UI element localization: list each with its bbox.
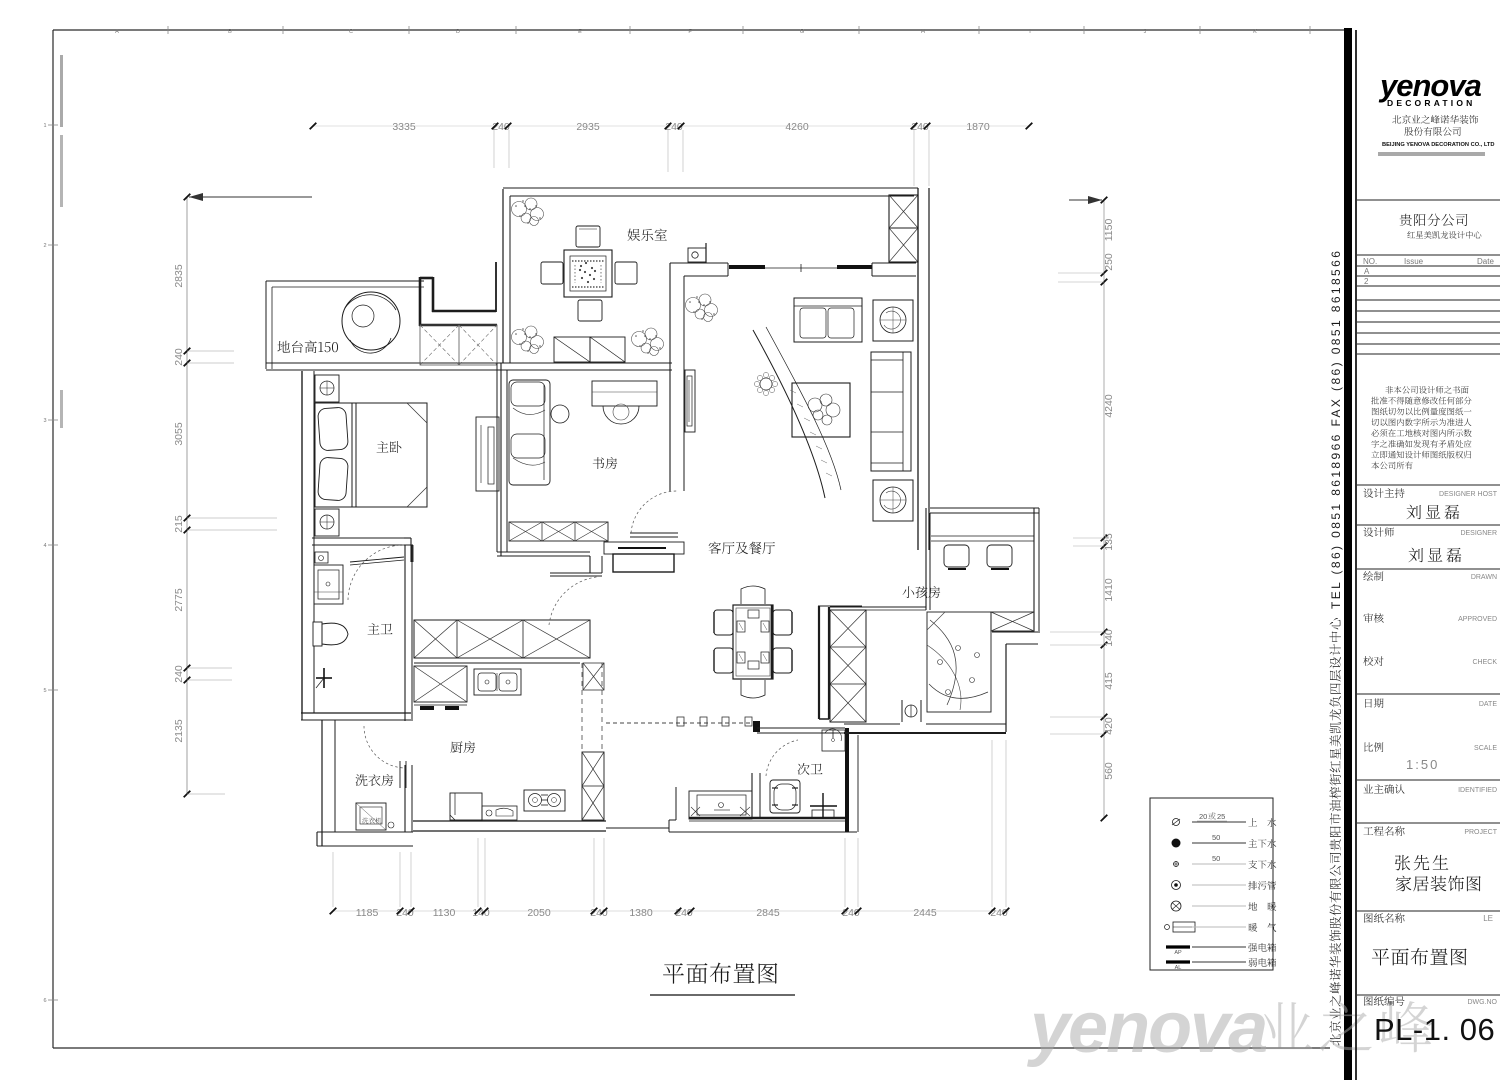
svg-text:420: 420 bbox=[1103, 717, 1115, 735]
svg-text:H: H bbox=[921, 29, 925, 35]
svg-text:2935: 2935 bbox=[576, 121, 600, 133]
svg-text:2845: 2845 bbox=[756, 907, 780, 919]
svg-text:NO.: NO. bbox=[1363, 257, 1377, 266]
svg-text:1870: 1870 bbox=[966, 121, 990, 133]
svg-text:C: C bbox=[349, 29, 353, 35]
svg-text:1130: 1130 bbox=[433, 907, 456, 919]
svg-text:3055: 3055 bbox=[173, 422, 185, 446]
svg-text:1150: 1150 bbox=[1103, 219, 1115, 242]
svg-text:3: 3 bbox=[43, 418, 46, 424]
svg-text:PL-1. 06: PL-1. 06 bbox=[1374, 1012, 1495, 1047]
svg-text:250: 250 bbox=[1103, 253, 1115, 271]
svg-text:yenova: yenova bbox=[1027, 988, 1266, 1068]
svg-text:240: 240 bbox=[173, 348, 185, 366]
svg-text:DRAWN: DRAWN bbox=[1471, 574, 1497, 581]
svg-text:2: 2 bbox=[1364, 277, 1369, 286]
svg-text:K: K bbox=[1253, 29, 1257, 35]
svg-text:2445: 2445 bbox=[913, 907, 937, 919]
svg-text:415: 415 bbox=[1103, 672, 1115, 690]
svg-text:2135: 2135 bbox=[173, 719, 185, 743]
svg-text:Issue: Issue bbox=[1404, 257, 1424, 266]
svg-text:LE: LE bbox=[1483, 914, 1493, 923]
svg-text:4: 4 bbox=[43, 543, 46, 549]
svg-text:Date: Date bbox=[1477, 257, 1494, 266]
svg-text:135: 135 bbox=[1103, 533, 1115, 551]
svg-text:25: 25 bbox=[1217, 812, 1225, 821]
svg-text:E: E bbox=[578, 29, 582, 35]
svg-text:50: 50 bbox=[1212, 854, 1220, 863]
svg-text:20: 20 bbox=[1199, 812, 1207, 821]
svg-text:215: 215 bbox=[173, 515, 185, 533]
svg-text:1185: 1185 bbox=[356, 907, 379, 919]
svg-text:2050: 2050 bbox=[527, 907, 551, 919]
svg-text:1410: 1410 bbox=[1103, 578, 1115, 602]
svg-text:B: B bbox=[228, 29, 232, 35]
svg-text:240: 240 bbox=[173, 665, 185, 683]
svg-text:DATE: DATE bbox=[1479, 701, 1497, 708]
svg-text:TEL (86) 0851 8618966 FAX (86: TEL (86) 0851 8618966 FAX (86) 0851 8618… bbox=[1329, 249, 1343, 609]
svg-text:DESIGNER: DESIGNER bbox=[1460, 530, 1497, 537]
svg-text:PROJECT: PROJECT bbox=[1464, 829, 1497, 836]
svg-text:2835: 2835 bbox=[173, 264, 185, 288]
svg-text:140: 140 bbox=[1103, 629, 1115, 647]
svg-text:APPROVED: APPROVED bbox=[1458, 616, 1497, 623]
svg-text:AP: AP bbox=[1174, 950, 1182, 956]
svg-text:4240: 4240 bbox=[1103, 394, 1115, 418]
svg-text:2775: 2775 bbox=[173, 588, 185, 612]
svg-text:G: G bbox=[800, 29, 804, 35]
svg-text:560: 560 bbox=[1103, 762, 1115, 780]
svg-text:D: D bbox=[456, 29, 460, 35]
svg-text:DWG.NO: DWG.NO bbox=[1467, 999, 1497, 1006]
svg-text:SCALE: SCALE bbox=[1474, 745, 1497, 752]
svg-text:IDENTIFIED: IDENTIFIED bbox=[1458, 787, 1497, 794]
svg-text:6: 6 bbox=[43, 998, 46, 1004]
svg-text:2: 2 bbox=[43, 243, 46, 249]
svg-text:5: 5 bbox=[43, 688, 46, 694]
svg-text:1380: 1380 bbox=[629, 907, 653, 919]
svg-text:BEIJING YENOVA DECORATION CO.,: BEIJING YENOVA DECORATION CO., LTD bbox=[1382, 142, 1495, 148]
svg-text:CHECK: CHECK bbox=[1472, 659, 1497, 666]
svg-text:DECORATION: DECORATION bbox=[1387, 98, 1476, 108]
svg-text:50: 50 bbox=[1212, 833, 1220, 842]
svg-text:AL: AL bbox=[1175, 965, 1182, 971]
svg-text:3335: 3335 bbox=[392, 121, 416, 133]
svg-text:A: A bbox=[115, 29, 119, 35]
svg-text:1:50: 1:50 bbox=[1406, 757, 1439, 772]
svg-text:1: 1 bbox=[43, 123, 46, 129]
svg-text:J: J bbox=[1144, 29, 1147, 35]
svg-text:4260: 4260 bbox=[785, 121, 809, 133]
svg-text:A: A bbox=[1364, 267, 1370, 276]
svg-text:DESIGNER HOST: DESIGNER HOST bbox=[1439, 491, 1498, 498]
